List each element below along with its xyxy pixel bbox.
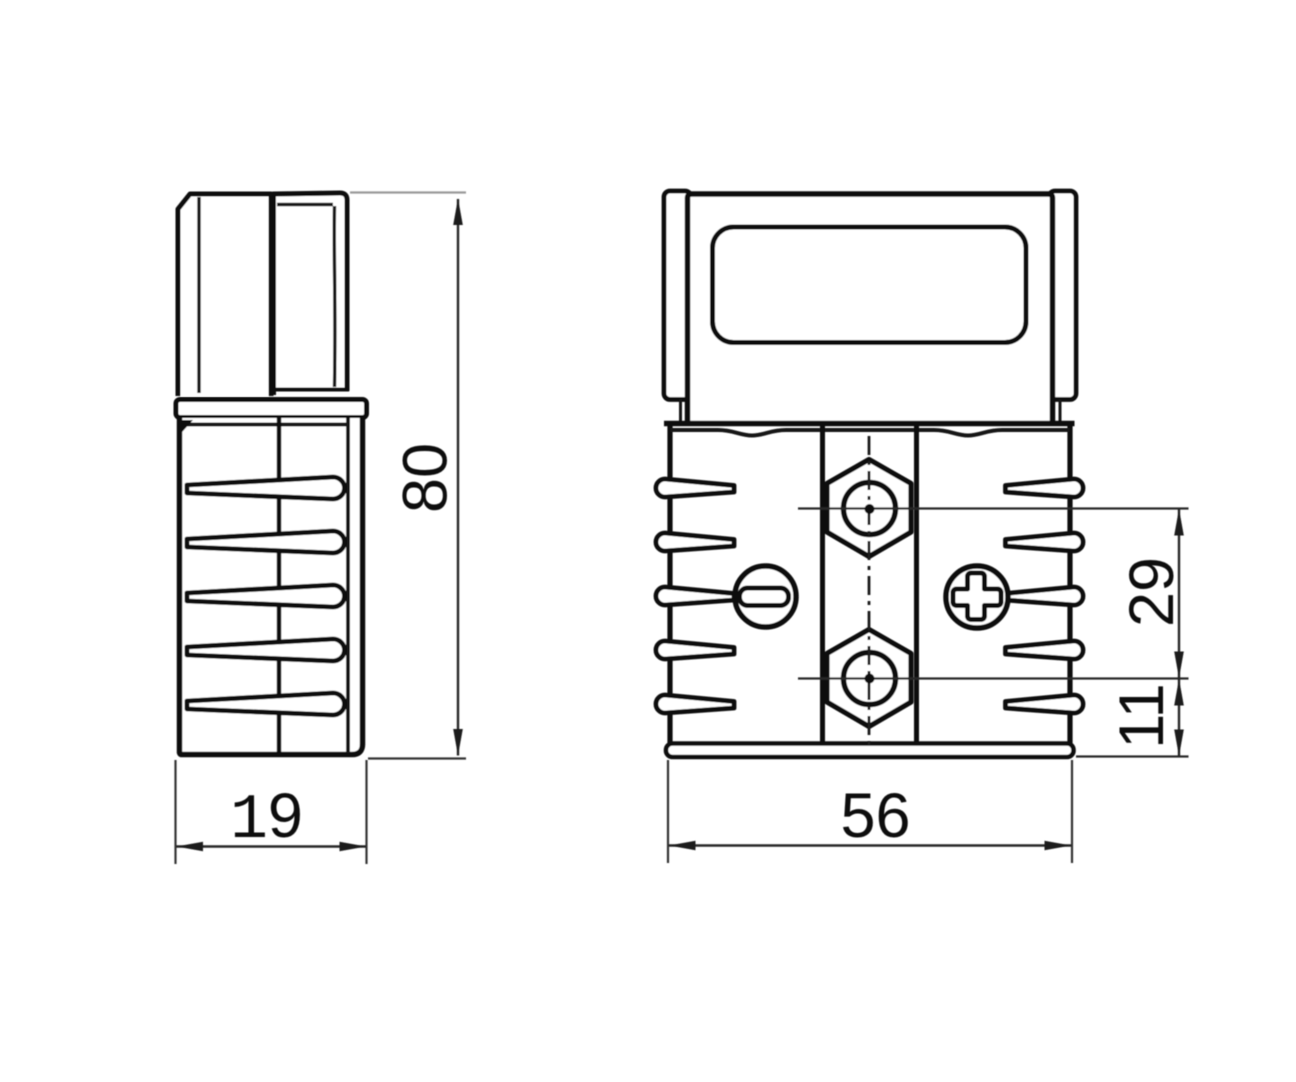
svg-text:80: 80 [391, 443, 461, 513]
svg-text:29: 29 [1117, 557, 1187, 627]
svg-text:19: 19 [230, 781, 303, 856]
svg-text:11: 11 [1107, 683, 1177, 748]
svg-text:56: 56 [840, 781, 910, 851]
